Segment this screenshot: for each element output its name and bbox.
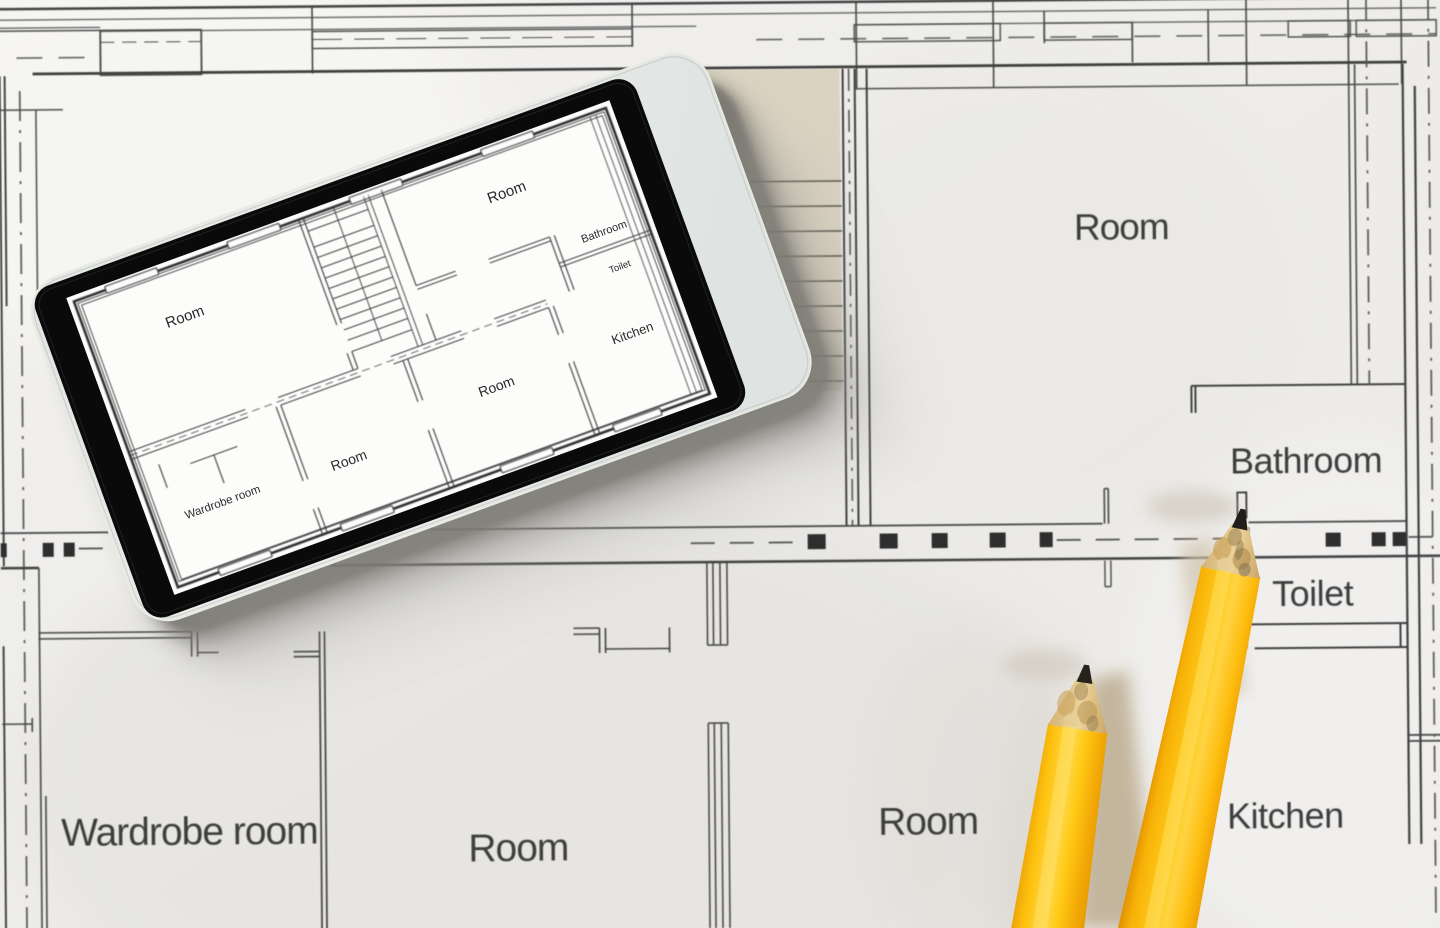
svg-text:Bathroom: Bathroom bbox=[1230, 439, 1382, 481]
svg-text:Wardrobe room: Wardrobe room bbox=[61, 810, 318, 855]
svg-text:Toilet: Toilet bbox=[1272, 572, 1354, 614]
svg-text:Room: Room bbox=[1074, 206, 1169, 248]
svg-text:Room: Room bbox=[468, 826, 568, 870]
svg-text:Kitchen: Kitchen bbox=[1227, 795, 1344, 837]
svg-text:Room: Room bbox=[878, 800, 978, 844]
